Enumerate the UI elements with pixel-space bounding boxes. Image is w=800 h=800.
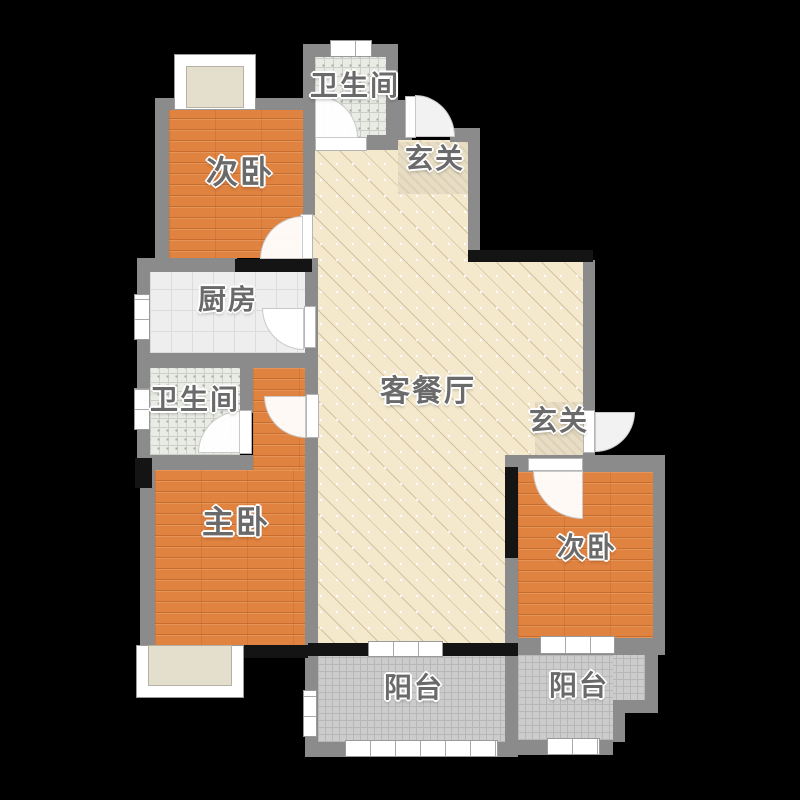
- bay-window-master-panel: [148, 645, 232, 686]
- window-balcony-right-bottom: [547, 738, 600, 755]
- wall-bath-left-right: [240, 368, 253, 413]
- wall-dark-bath-master: [135, 458, 152, 488]
- door-arc-entrance-top: [415, 95, 455, 137]
- wall-dark-bedroom-right-left: [505, 467, 518, 558]
- bay-window-bedroom-tl-panel: [186, 66, 244, 108]
- label-kitchen: 厨房: [198, 278, 258, 318]
- wall-dark-balcony-left-a: [308, 643, 370, 656]
- wall-dark-kitchen-top: [235, 259, 312, 272]
- wall-dark-top-right: [468, 250, 593, 262]
- label-balcony-left: 阳台: [384, 666, 444, 706]
- label-bedroom-top-left: 次卧: [206, 147, 274, 193]
- window-bathroom-left: [134, 388, 150, 430]
- wall-bedroom-tl-left: [155, 98, 169, 270]
- window-living-balcony: [368, 641, 443, 657]
- wall-hall-right: [468, 128, 480, 258]
- wall-dark-balcony-left-b: [443, 643, 518, 656]
- door-arc-entrance-right: [595, 412, 635, 452]
- door-leaf-bathroom-top: [315, 137, 367, 151]
- door-leaf-kitchen: [304, 306, 316, 348]
- window-kitchen: [134, 294, 150, 340]
- window-balcony-left-bottom: [345, 740, 498, 757]
- wall-bath-left-bottom: [137, 455, 253, 470]
- label-hall-top: 玄关: [405, 137, 465, 177]
- label-hall-right: 玄关: [529, 399, 589, 439]
- label-bedroom-right: 次卧: [557, 526, 617, 566]
- wall-dark-master-bottom: [242, 645, 308, 658]
- window-balcony-left-side: [303, 690, 317, 737]
- label-bathroom-top: 卫生间: [310, 64, 400, 104]
- wall-balcony-right-step-v: [613, 700, 625, 742]
- wall-kitchen-top: [137, 258, 237, 272]
- label-balcony-right: 阳台: [549, 664, 609, 704]
- wall-bedroom-right-right: [653, 455, 665, 653]
- wall-living-right-upper: [583, 260, 595, 412]
- door-leaf-bathroom-left: [239, 410, 252, 454]
- door-leaf-master: [306, 394, 319, 438]
- door-leaf-bedroom-right: [528, 458, 583, 471]
- wall-bathroom-top-bottom: [367, 135, 398, 150]
- label-living-dining: 客餐厅: [380, 366, 476, 410]
- wall-kitchen-bath-divider: [137, 353, 312, 368]
- floor-plan: 次卧 卫生间 玄关 厨房 卫生间 客餐厅 玄关 主卧 次卧 阳台 阳台: [0, 0, 800, 800]
- label-master-bedroom: 主卧: [202, 497, 270, 543]
- wall-master-left: [140, 470, 155, 648]
- label-bathroom-left: 卫生间: [150, 378, 240, 418]
- window-bathroom-top: [330, 40, 372, 57]
- wall-balcony-divider: [505, 645, 518, 755]
- window-bedroom-right-balcony: [540, 636, 615, 654]
